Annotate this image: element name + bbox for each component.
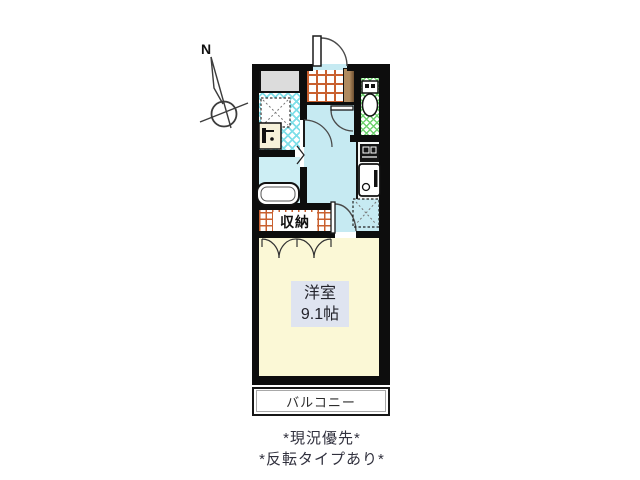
entrance-genkan-tile [307,70,345,103]
toilet-room-floor [361,78,379,136]
outer-wall-right [379,64,390,385]
entrance-door-leaf [313,36,321,66]
entrance-door [313,36,347,66]
main-room-label: 洋室 9.1帖 [291,281,349,327]
washroom-floor [259,93,300,150]
outer-wall-left [252,64,259,385]
hall-partition-wall-upper [300,64,307,120]
entrance-door-arc [321,38,347,66]
note-line-2: *反転タイプあり* [212,449,432,470]
closet-label-text: 収納 [280,212,310,232]
compass-needle-edge [211,57,223,104]
bathroom-floor [259,157,300,203]
toilet-kitchen-divider-wall [350,135,379,142]
note-line-1: *現況優先* [212,428,432,449]
balcony: バルコニー [252,387,390,416]
compass-cross-line [200,103,248,122]
outer-wall-bottom [252,376,390,385]
closet-label: 収納 [273,212,317,231]
kitchen-counter [356,142,379,199]
toilet-left-wall [354,64,361,138]
outer-wall-top-left [252,64,313,71]
balcony-label: バルコニー [286,392,356,411]
compass-rose: N [200,41,248,128]
genkan-step-edge [307,102,355,105]
plan-notes: *現況優先* *反転タイプあり* [212,428,432,470]
hall-partition-wall-lower [300,167,307,203]
main-room-size: 9.1帖 [301,304,339,325]
balcony-inner: バルコニー [256,390,386,412]
closet-bottom-wall [252,231,335,238]
compass-circle [212,102,237,127]
compass-needle [211,57,231,128]
floorplan-canvas: 収納 洋室 9.1帖 バルコニー *現況優先* *反転タイプあり* N [0,0,640,480]
main-room-name: 洋室 [304,283,336,304]
closet-top-wall [252,203,335,210]
compass-north-label: N [201,41,211,57]
